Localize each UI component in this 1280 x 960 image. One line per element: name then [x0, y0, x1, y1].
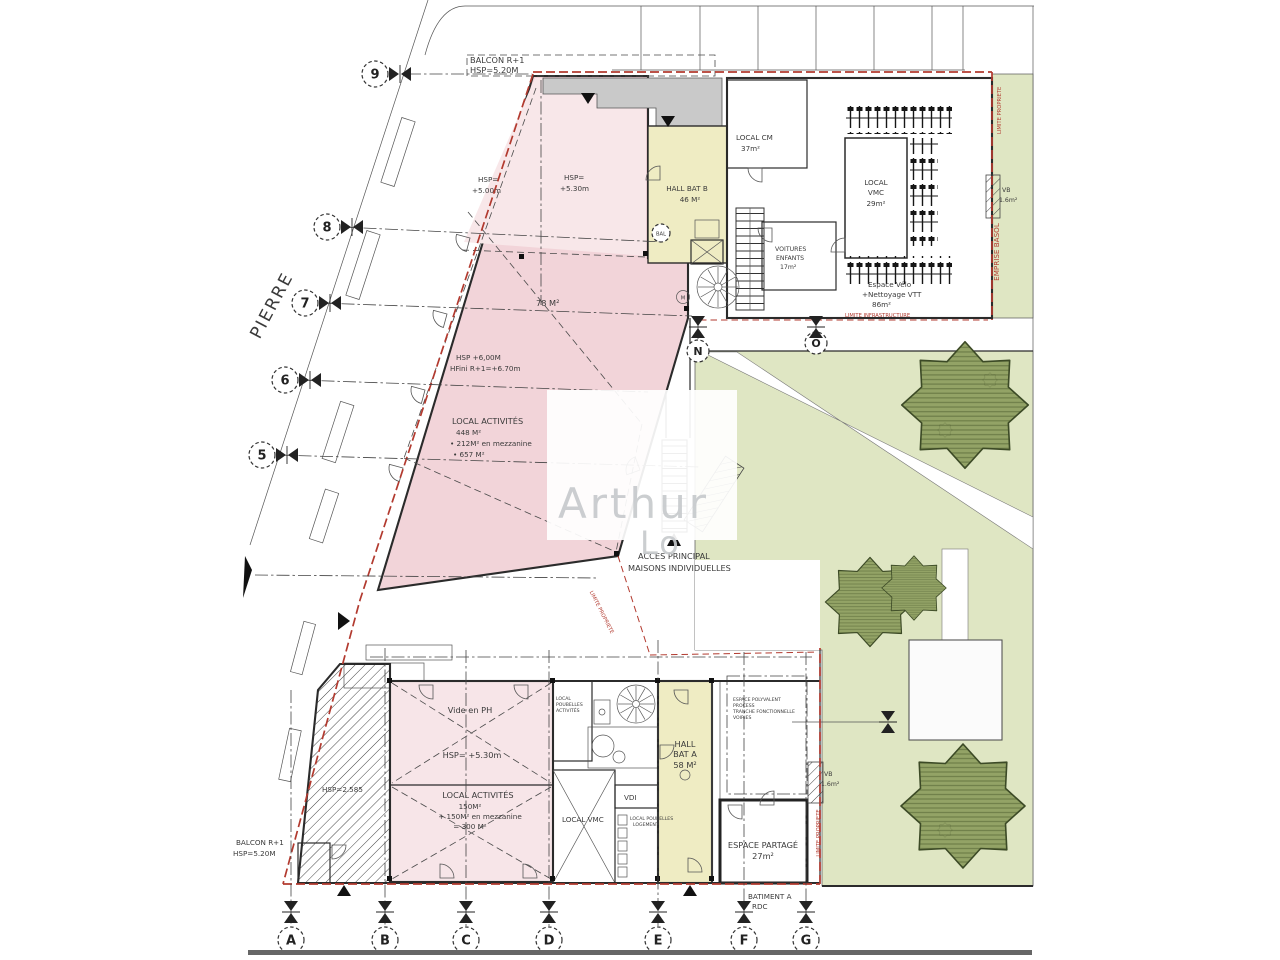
local-vmc-b-room [845, 138, 907, 258]
grid-col-g: G [801, 934, 812, 949]
scale-bar [248, 950, 1032, 955]
shower [594, 700, 610, 724]
hsp-b1: HSP= [564, 173, 584, 182]
bike-rack [910, 138, 938, 246]
local-activites-b-s3: • 657 M² [453, 450, 485, 459]
grid-col-f: F [740, 934, 749, 949]
balcon-top-label: BALCON R+1 [470, 55, 524, 65]
poubelles-act-2: POUBELLES [556, 702, 583, 708]
watermark-text-2: Lo [640, 524, 681, 562]
batiment-a-level: RDC [752, 902, 768, 911]
grid-col-e: E [654, 934, 663, 949]
hsp-c1: HSP +6,00M [456, 353, 501, 362]
floor-plan: PIERRE ACCES PRINCIPAL MAISO [0, 0, 1280, 960]
grid-col-b: B [380, 934, 390, 949]
maison-individuelle [909, 640, 1002, 740]
row-bubbles: 9 8 7 6 5 [249, 61, 411, 468]
espace-poly-4: VOIRIES [733, 715, 751, 721]
local-activites-a-s3: = 300 M² [453, 822, 487, 831]
limite-propriete-right: LIMITE PROPRIETE [816, 809, 822, 856]
street-left-curb [250, 0, 428, 545]
side-triangle-icon [338, 612, 350, 630]
batiment-a: Vide en PH HSP= +5.30m LOCAL ACTIVITÉS 1… [233, 645, 897, 911]
grid-col-c: C [461, 934, 471, 949]
emprise-basol-label: EMPRISE BASOL [992, 223, 1001, 281]
hsp-a2: +5.00m [472, 186, 501, 195]
spiral-stair-a [617, 685, 655, 723]
espace-poly-1: ESPACE POLYVALENT [733, 697, 781, 703]
tree-icon [902, 342, 1028, 468]
batiment-a-label: BATIMENT A [748, 892, 792, 901]
balcon-top-hsp: HSP=5.20M [470, 65, 518, 75]
tree-icon [901, 744, 1025, 868]
vb-a-label: VB [824, 771, 832, 778]
grid-row-6: 6 [280, 374, 289, 389]
espace-poly-outline [727, 676, 807, 794]
grid-aux-n: N [693, 345, 702, 358]
local-cm-area: 37m² [741, 144, 760, 153]
espace-poly-3: TRANCHE FONCTIONNELLE [732, 709, 795, 715]
hall-bat-a-room [658, 681, 712, 883]
hsp-a-label: HSP= +5.30m [443, 750, 502, 760]
grid-col-a: A [286, 934, 296, 949]
local-cm-label: LOCAL CM [736, 133, 773, 142]
local-activites-b: LOCAL ACTIVITÉS [452, 415, 523, 426]
velo-label2: +Nettoyage VTT [862, 290, 922, 299]
hall-b-label: HALL BAT B [666, 184, 708, 193]
hall-a-area: 58 M² [673, 760, 696, 770]
grid-col-d: D [544, 934, 555, 949]
local-vmc-b-area: 29m² [866, 199, 885, 208]
acces-label2: MAISONS INDIVIDUELLES [628, 563, 731, 573]
street-top-curb [425, 6, 1034, 55]
poubelles-log-1: LOCAL POUBELLES [630, 816, 673, 822]
limite-propriete-diag: LIMITE PROPRIETE [588, 590, 615, 635]
local-vmc-a-label: LOCAL VMC [562, 815, 604, 824]
voitures-area: 17m² [780, 264, 797, 271]
local-activites-a-s2: + 150M² en mezzanine [438, 812, 522, 821]
velo-label: Espace Vélo [868, 280, 911, 289]
velo-area: 86m² [872, 300, 891, 309]
spiral-stair-b [697, 266, 739, 308]
local-activites-b-s1: 448 M² [456, 428, 481, 437]
hsp-hatch-label: HSP=2.585 [322, 785, 363, 794]
grid-row-9: 9 [370, 68, 379, 83]
balcony-edge [366, 645, 452, 660]
watermark: Arthur Lo [547, 390, 737, 562]
bal-label: BAL [656, 232, 666, 238]
vb-b-area: 1.6m² [999, 197, 1018, 204]
vb-box-b [986, 175, 1000, 218]
watermark-text-1: Arthur [558, 479, 709, 528]
limite-infrastructure-label: LIMITE INFRASTRUCTURE [845, 313, 910, 319]
limite-propriete-top: LIMITE PROPRIETE [997, 87, 1003, 134]
poubelles-act-1: LOCAL [556, 696, 571, 702]
hsp-b2: +5.30m [560, 184, 589, 193]
espace-partage-area: 27m² [752, 851, 774, 861]
col-bubbles: A B C D E F G [278, 901, 819, 953]
poubelles-log-2: LOGEMENT [633, 822, 659, 828]
vide-label: Vide en PH [448, 705, 492, 715]
garden-white-zone [695, 560, 820, 650]
parking-dividers [641, 6, 963, 70]
street-name: PIERRE [246, 269, 298, 342]
hall-b-area: 46 M² [680, 195, 701, 204]
entrance-triangle-icon [337, 885, 351, 896]
voitures-label2: ENFANTS [776, 255, 804, 262]
m-label: M [681, 296, 685, 302]
vb-a-area: 1.6m² [821, 781, 840, 788]
local-vmc-b-label: LOCAL [864, 178, 887, 187]
vb-b-label: VB [1002, 187, 1010, 194]
voitures-label: VOITURES [775, 246, 806, 253]
north-sliver [243, 556, 252, 598]
hsp-c2: HFini R+1=+6.70m [450, 364, 521, 373]
bike-rack [846, 104, 952, 134]
balcon-bottom-label: BALCON R+1 [236, 838, 284, 847]
local-activites-b-s2: • 212M² en mezzanine [450, 439, 532, 448]
vdi-label: VDI [624, 793, 637, 802]
entrance-triangle-icon [683, 885, 697, 896]
grid-aux-o: O [811, 337, 820, 350]
grid-row-8: 8 [322, 221, 331, 236]
local-activites-a: LOCAL ACTIVITÉS [442, 789, 513, 800]
local-vmc-b-label2: VMC [868, 188, 884, 197]
balcon-bottom-hsp: HSP=5.20M [233, 849, 276, 858]
hatch-zone [298, 664, 390, 883]
surface-78: 78 M² [536, 298, 559, 308]
hall-a-label2: BAT A [673, 749, 697, 759]
bins [618, 815, 627, 877]
hsp-a1: HSP= [478, 175, 498, 184]
hall-a-label: HALL [675, 739, 696, 749]
local-activites-a-s1: 150M² [459, 802, 482, 811]
poubelles-act-room [553, 681, 592, 761]
tree-icon [882, 556, 946, 620]
grid-row-7: 7 [300, 297, 309, 312]
espace-partage-label: ESPACE PARTAGÉ [728, 839, 798, 850]
grid-row-5: 5 [257, 449, 266, 464]
